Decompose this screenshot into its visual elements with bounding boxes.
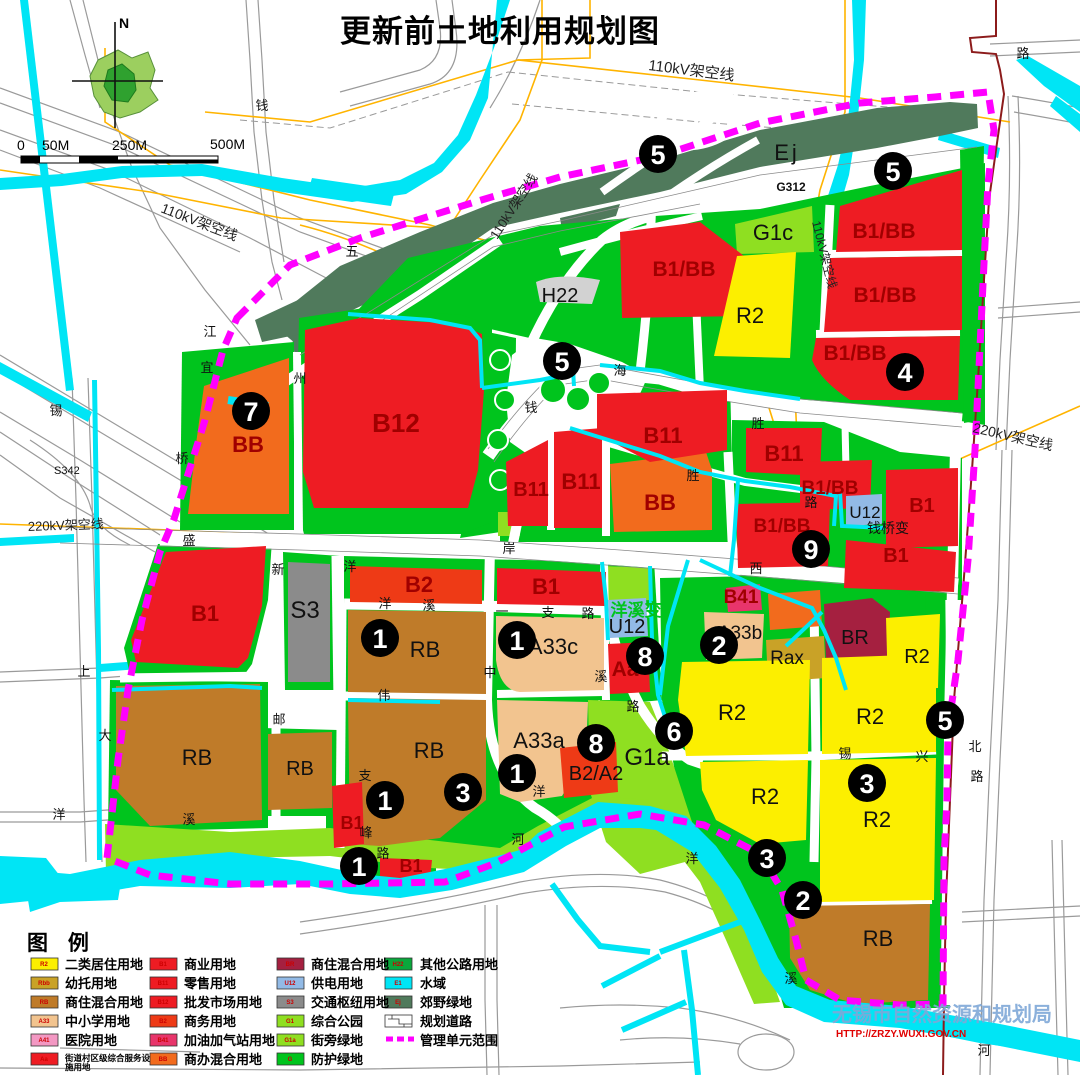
- svg-text:综合公园: 综合公园: [311, 1014, 363, 1029]
- svg-text:H22: H22: [542, 285, 579, 307]
- svg-text:路: 路: [626, 699, 639, 714]
- svg-text:溪: 溪: [594, 669, 607, 684]
- svg-text:1: 1: [351, 852, 366, 882]
- svg-text:岸: 岸: [502, 541, 515, 556]
- svg-text:新: 新: [271, 562, 284, 577]
- svg-text:一: 一: [495, 604, 508, 619]
- svg-text:N: N: [119, 15, 129, 31]
- svg-text:规划道路: 规划道路: [420, 1014, 473, 1029]
- svg-text:河: 河: [977, 1043, 990, 1058]
- svg-text:8: 8: [588, 729, 603, 759]
- svg-text:水域: 水域: [420, 976, 446, 991]
- svg-text:B11: B11: [643, 423, 682, 448]
- svg-text:批发市场用地: 批发市场用地: [184, 995, 262, 1010]
- svg-text:R2: R2: [718, 700, 746, 725]
- svg-text:洋: 洋: [378, 596, 391, 611]
- svg-text:250M: 250M: [112, 137, 147, 153]
- svg-text:50M: 50M: [42, 137, 69, 153]
- svg-text:五: 五: [345, 244, 358, 259]
- svg-text:R2: R2: [751, 784, 779, 809]
- svg-text:B11: B11: [764, 441, 803, 466]
- svg-text:5: 5: [937, 706, 952, 736]
- svg-text:2: 2: [795, 886, 810, 916]
- svg-text:路: 路: [970, 769, 983, 784]
- svg-text:B41: B41: [157, 1038, 169, 1044]
- svg-text:B11: B11: [513, 479, 549, 501]
- svg-text:B1: B1: [909, 495, 935, 517]
- svg-text:B1: B1: [532, 574, 560, 599]
- svg-text:G1a: G1a: [624, 744, 670, 771]
- svg-text:支: 支: [541, 605, 554, 620]
- svg-text:锡: 锡: [49, 403, 62, 418]
- svg-text:施用地: 施用地: [65, 1062, 91, 1072]
- svg-text:RB: RB: [182, 745, 213, 770]
- svg-text:1: 1: [509, 626, 524, 656]
- svg-text:220kV架空线: 220kV架空线: [28, 516, 104, 534]
- svg-text:B1/BB: B1/BB: [853, 284, 916, 307]
- svg-text:路: 路: [1016, 46, 1029, 61]
- svg-text:B1/BB: B1/BB: [652, 258, 715, 281]
- svg-text:5: 5: [554, 347, 569, 377]
- svg-text:B1/BB: B1/BB: [852, 220, 915, 243]
- svg-text:零售用地: 零售用地: [183, 976, 236, 991]
- svg-text:B2: B2: [159, 1019, 167, 1025]
- svg-text:海: 海: [613, 363, 626, 378]
- svg-text:钱桥变: 钱桥变: [867, 520, 909, 536]
- svg-text:洋: 洋: [685, 851, 698, 866]
- svg-text:Ej: Ej: [395, 1000, 401, 1006]
- svg-text:1: 1: [509, 759, 524, 789]
- svg-text:溪: 溪: [784, 971, 797, 986]
- svg-text:E1: E1: [394, 981, 402, 987]
- svg-text:商办混合用地: 商办混合用地: [184, 1052, 262, 1067]
- svg-text:钱: 钱: [524, 400, 537, 415]
- svg-text:RB: RB: [286, 758, 314, 780]
- svg-text:大: 大: [98, 728, 111, 743]
- svg-text:B11: B11: [561, 469, 600, 494]
- svg-text:更新前土地利用规划图: 更新前土地利用规划图: [340, 14, 660, 49]
- svg-text:供电用地: 供电用地: [310, 976, 363, 991]
- svg-text:桥: 桥: [175, 451, 188, 466]
- svg-text:街旁绿地: 街旁绿地: [310, 1033, 363, 1048]
- svg-text:BB: BB: [159, 1057, 168, 1063]
- svg-text:支: 支: [358, 768, 371, 783]
- svg-text:州: 州: [293, 371, 306, 386]
- svg-text:上: 上: [77, 664, 90, 679]
- svg-text:Aa: Aa: [40, 1057, 48, 1063]
- svg-text:B1: B1: [191, 601, 219, 626]
- svg-text:B41: B41: [724, 587, 759, 608]
- svg-text:5: 5: [885, 157, 900, 187]
- svg-text:R2: R2: [736, 303, 764, 328]
- svg-text:商住混合用地: 商住混合用地: [65, 995, 143, 1010]
- svg-text:其他公路用地: 其他公路用地: [420, 957, 498, 972]
- svg-text:BB: BB: [232, 432, 264, 457]
- svg-text:R2: R2: [856, 704, 884, 729]
- svg-text:宜: 宜: [200, 360, 213, 375]
- svg-text:4: 4: [897, 358, 912, 388]
- svg-text:Rax: Rax: [770, 648, 804, 669]
- svg-text:0: 0: [17, 137, 25, 153]
- svg-text:胜: 胜: [686, 468, 699, 483]
- svg-text:交通枢纽用地: 交通枢纽用地: [311, 995, 389, 1010]
- svg-text:9: 9: [803, 535, 818, 565]
- svg-text:U12: U12: [284, 981, 296, 987]
- svg-text:钱: 钱: [255, 98, 268, 113]
- svg-text:江: 江: [203, 324, 216, 339]
- svg-text:R2: R2: [904, 646, 930, 668]
- svg-text:S3: S3: [290, 597, 319, 624]
- svg-text:商业用地: 商业用地: [184, 957, 236, 972]
- svg-text:北: 北: [968, 739, 981, 754]
- svg-text:图 例: 图 例: [27, 931, 96, 955]
- svg-text:500M: 500M: [210, 136, 245, 152]
- svg-text:幼托用地: 幼托用地: [65, 976, 117, 991]
- svg-text:RB: RB: [414, 738, 445, 763]
- svg-text:A33a: A33a: [513, 728, 565, 753]
- svg-text:RB: RB: [40, 1000, 49, 1006]
- svg-text:1: 1: [377, 786, 392, 816]
- svg-text:河: 河: [511, 832, 524, 847]
- svg-text:B11: B11: [158, 981, 169, 987]
- svg-text:G1a: G1a: [284, 1038, 296, 1044]
- svg-text:洋: 洋: [52, 807, 65, 822]
- svg-text:伟: 伟: [377, 688, 390, 703]
- svg-text:中: 中: [483, 665, 496, 680]
- svg-text:胜: 胜: [751, 416, 764, 431]
- svg-text:6: 6: [666, 717, 681, 747]
- svg-text:5: 5: [650, 140, 665, 170]
- svg-text:BB: BB: [644, 490, 676, 515]
- svg-text:B12: B12: [372, 408, 420, 438]
- svg-text:S3: S3: [286, 1000, 294, 1006]
- svg-text:A41: A41: [38, 1038, 50, 1044]
- svg-text:G: G: [288, 1057, 293, 1063]
- svg-text:二类居住用地: 二类居住用地: [65, 957, 143, 972]
- svg-text:G1c: G1c: [753, 220, 793, 245]
- svg-text:HTTP://ZRZY.WUXI.GOV.CN: HTTP://ZRZY.WUXI.GOV.CN: [836, 1029, 966, 1040]
- svg-text:路: 路: [581, 606, 594, 621]
- svg-text:兴: 兴: [915, 749, 928, 764]
- svg-text:G312: G312: [776, 180, 806, 194]
- svg-text:R2: R2: [40, 962, 48, 968]
- svg-text:A33: A33: [38, 1019, 50, 1025]
- svg-text:西: 西: [749, 561, 762, 576]
- svg-text:2: 2: [711, 631, 726, 661]
- svg-text:路: 路: [376, 846, 389, 861]
- svg-text:洋: 洋: [343, 559, 356, 574]
- svg-text:RB: RB: [410, 637, 441, 662]
- svg-text:邮: 邮: [272, 712, 285, 727]
- svg-text:H22: H22: [392, 962, 404, 968]
- svg-text:B1/BB: B1/BB: [823, 342, 886, 365]
- svg-text:RB: RB: [863, 926, 894, 951]
- svg-text:商住混合用地: 商住混合用地: [311, 957, 389, 972]
- svg-text:1: 1: [372, 624, 387, 654]
- svg-text:8: 8: [637, 642, 652, 672]
- svg-text:盛: 盛: [182, 533, 195, 548]
- svg-text:R2: R2: [863, 807, 891, 832]
- svg-text:BR: BR: [841, 627, 869, 649]
- svg-text:中小学用地: 中小学用地: [65, 1014, 130, 1029]
- svg-text:溪: 溪: [422, 598, 435, 613]
- svg-text:B2/A2: B2/A2: [569, 763, 623, 785]
- svg-text:BR: BR: [286, 962, 295, 968]
- svg-text:锡: 锡: [838, 746, 851, 761]
- svg-text:7: 7: [243, 397, 258, 427]
- svg-text:洋: 洋: [532, 784, 545, 799]
- svg-text:郊野绿地: 郊野绿地: [420, 995, 472, 1010]
- svg-text:溪: 溪: [182, 812, 195, 827]
- svg-text:3: 3: [859, 769, 874, 799]
- svg-text:Ej: Ej: [774, 140, 800, 165]
- svg-text:加油加气站用地: 加油加气站用地: [183, 1033, 275, 1048]
- svg-text:商务用地: 商务用地: [184, 1014, 236, 1029]
- svg-text:峰: 峰: [359, 825, 372, 840]
- svg-text:3: 3: [759, 844, 774, 874]
- svg-text:Rbb: Rbb: [38, 981, 50, 987]
- svg-text:B12: B12: [157, 1000, 169, 1006]
- svg-text:防护绿地: 防护绿地: [311, 1052, 363, 1067]
- svg-text:医院用地: 医院用地: [65, 1033, 117, 1048]
- svg-text:B1: B1: [399, 856, 422, 876]
- svg-text:管理单元范围: 管理单元范围: [420, 1033, 498, 1048]
- svg-text:S342: S342: [54, 465, 80, 477]
- svg-text:3: 3: [455, 778, 470, 808]
- svg-text:洋溪变: 洋溪变: [611, 600, 662, 620]
- svg-text:B1: B1: [159, 962, 167, 968]
- svg-text:无锡市自然资源和规划局: 无锡市自然资源和规划局: [832, 1002, 1052, 1026]
- svg-text:B2: B2: [405, 572, 433, 597]
- svg-text:B1: B1: [883, 545, 909, 567]
- svg-text:G1: G1: [286, 1019, 295, 1025]
- svg-text:路: 路: [804, 495, 817, 510]
